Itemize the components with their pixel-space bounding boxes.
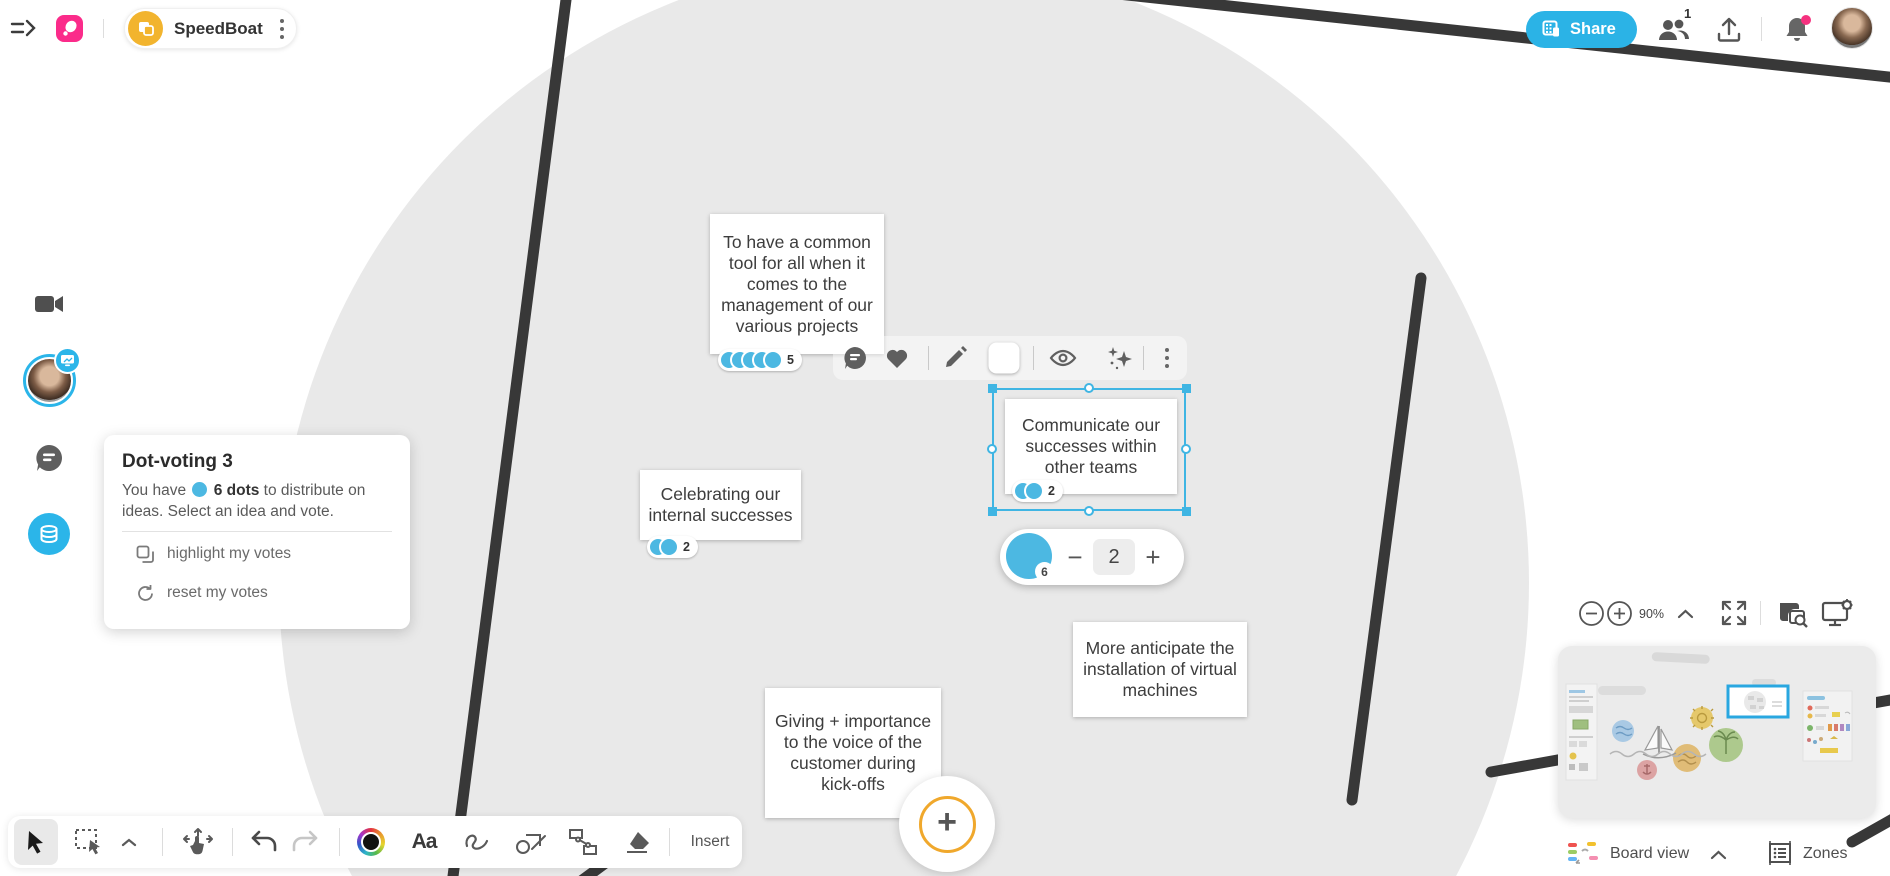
idea-note-text: Communicate our successes within other t… — [1011, 415, 1171, 478]
dot-voting-title: Dot-voting 3 — [122, 451, 233, 473]
dot-voting-activity-icon[interactable] — [28, 513, 70, 555]
dot-voting-instructions: You have 6 dots to distribute on ideas. … — [122, 481, 396, 523]
vote-stepper: 6 − 2 + — [1000, 529, 1184, 585]
plus-icon: + — [919, 796, 976, 853]
minimap-drawing — [1566, 652, 1852, 780]
redo-icon[interactable] — [291, 829, 319, 855]
vote-increase-button[interactable]: + — [1135, 529, 1171, 585]
idea-note-text: More anticipate the installation of virt… — [1079, 638, 1241, 701]
sidebar-expand-icon[interactable] — [8, 15, 38, 41]
display-settings-icon[interactable] — [1821, 598, 1854, 629]
pencil-icon[interactable] — [942, 345, 968, 371]
insert-button[interactable]: Insert — [691, 833, 730, 851]
idea-note-text: Giving + importance to the voice of the … — [771, 711, 935, 795]
export-icon[interactable] — [1714, 15, 1744, 45]
zoom-out-icon[interactable] — [1578, 600, 1605, 627]
toolbar-divider — [1033, 346, 1034, 370]
drawing-toolbar: Aa Insert — [8, 816, 742, 868]
marquee-options-chevron-icon[interactable] — [121, 837, 137, 847]
zoom-level: 90% — [1639, 607, 1664, 621]
instructions-prefix: You have — [122, 482, 186, 499]
remaining-dots-count: 6 — [1035, 562, 1054, 581]
marquee-select-tool[interactable] — [74, 828, 104, 856]
vote-count-badge: 2 — [647, 536, 698, 558]
user-avatar[interactable] — [1831, 7, 1873, 49]
zoom-in-icon[interactable] — [1606, 600, 1633, 627]
connector-tool[interactable] — [568, 828, 598, 856]
screenshare-badge-icon — [54, 347, 81, 374]
minimap-viewport[interactable] — [1728, 686, 1788, 717]
vote-count: 2 — [683, 540, 690, 554]
eye-icon[interactable] — [1048, 343, 1078, 373]
app-logo[interactable] — [56, 15, 83, 42]
vote-dot-icon — [192, 482, 207, 497]
zones-button[interactable]: Zones — [1803, 845, 1847, 863]
heart-icon[interactable] — [884, 345, 910, 371]
selection-handle-ne[interactable] — [1182, 384, 1191, 393]
vote-count-badge: 5 — [718, 349, 802, 371]
vote-decrease-button[interactable]: − — [1057, 529, 1093, 585]
color-picker[interactable] — [357, 828, 385, 856]
highlight-votes-icon — [136, 545, 155, 564]
vote-count-badge: 2 — [1012, 480, 1063, 502]
idea-note-text: To have a common tool for all when it co… — [716, 232, 878, 337]
add-idea-button[interactable]: + — [899, 776, 995, 872]
participants-count-badge: 1 — [1684, 6, 1691, 21]
toolbar-divider — [162, 828, 163, 856]
zones-icon[interactable] — [1766, 840, 1794, 866]
panel-divider — [122, 531, 392, 532]
note-color-swatch[interactable] — [989, 343, 1020, 374]
vote-count: 2 — [1048, 484, 1055, 498]
share-button[interactable]: Share — [1526, 11, 1637, 48]
header-divider — [103, 19, 104, 38]
video-camera-icon[interactable] — [32, 289, 66, 319]
reset-my-votes-item[interactable]: reset my votes — [122, 578, 268, 608]
select-cursor-tool[interactable] — [24, 829, 48, 855]
board-view-chevron-icon[interactable] — [1710, 849, 1727, 860]
selection-handle-n[interactable] — [1084, 383, 1094, 393]
share-board-icon — [1541, 19, 1562, 40]
note-context-toolbar — [833, 336, 1187, 380]
shapes-tool[interactable] — [514, 828, 548, 856]
vote-count: 5 — [787, 353, 794, 367]
idea-note[interactable]: Celebrating our internal successes — [640, 470, 801, 540]
notifications-bell-icon[interactable] — [1781, 14, 1813, 46]
highlight-my-votes-item[interactable]: highlight my votes — [122, 539, 291, 569]
board-title-pill[interactable]: SpeedBoat — [124, 8, 297, 49]
zoom-menu-chevron-icon[interactable] — [1677, 608, 1694, 619]
pan-move-tool[interactable] — [181, 826, 215, 858]
fullscreen-icon[interactable] — [1720, 599, 1748, 627]
toolbar-divider — [669, 828, 670, 856]
board-name: SpeedBoat — [174, 19, 263, 39]
selection-handle-se[interactable] — [1182, 507, 1191, 516]
undo-icon[interactable] — [250, 829, 278, 855]
board-overview-search-icon[interactable] — [1776, 599, 1808, 628]
board-icon — [128, 11, 163, 46]
board-view-selector[interactable]: Board view — [1610, 845, 1689, 863]
controls-divider — [1760, 601, 1761, 625]
reset-votes-icon — [136, 584, 155, 603]
share-label: Share — [1570, 20, 1616, 39]
freehand-draw-tool[interactable] — [463, 828, 493, 856]
selection-handle-s[interactable] — [1084, 506, 1094, 516]
idea-note[interactable]: To have a common tool for all when it co… — [710, 214, 884, 354]
sparkles-icon[interactable] — [1105, 343, 1135, 373]
vote-value: 2 — [1093, 539, 1135, 575]
reset-my-votes-label: reset my votes — [167, 584, 268, 602]
chat-icon[interactable] — [32, 441, 66, 475]
toolbar-divider — [1143, 346, 1144, 370]
dots-remaining-label: 6 dots — [214, 482, 260, 499]
selection-handle-sw[interactable] — [988, 507, 997, 516]
selection-handle-e[interactable] — [1181, 444, 1191, 454]
selection-handle-w[interactable] — [987, 444, 997, 454]
board-minimap[interactable] — [1558, 646, 1876, 818]
selection-handle-nw[interactable] — [988, 384, 997, 393]
highlight-my-votes-label: highlight my votes — [167, 545, 291, 563]
more-options-icon[interactable] — [1165, 348, 1169, 368]
toolbar-divider — [928, 346, 929, 370]
board-view-icon — [1566, 840, 1600, 866]
dot-voting-panel: Dot-voting 3 You have 6 dots to distribu… — [104, 435, 410, 629]
header-divider — [1761, 17, 1762, 41]
eraser-tool[interactable] — [621, 828, 651, 856]
toolbar-divider — [232, 828, 233, 856]
toolbar-divider — [339, 828, 340, 856]
idea-note[interactable]: More anticipate the installation of virt… — [1073, 622, 1247, 717]
comment-icon[interactable] — [841, 344, 869, 372]
board-menu-icon[interactable] — [280, 19, 284, 39]
presenter-avatar[interactable] — [23, 354, 76, 407]
idea-note-text: Celebrating our internal successes — [646, 484, 795, 526]
text-tool[interactable]: Aa — [412, 830, 437, 854]
